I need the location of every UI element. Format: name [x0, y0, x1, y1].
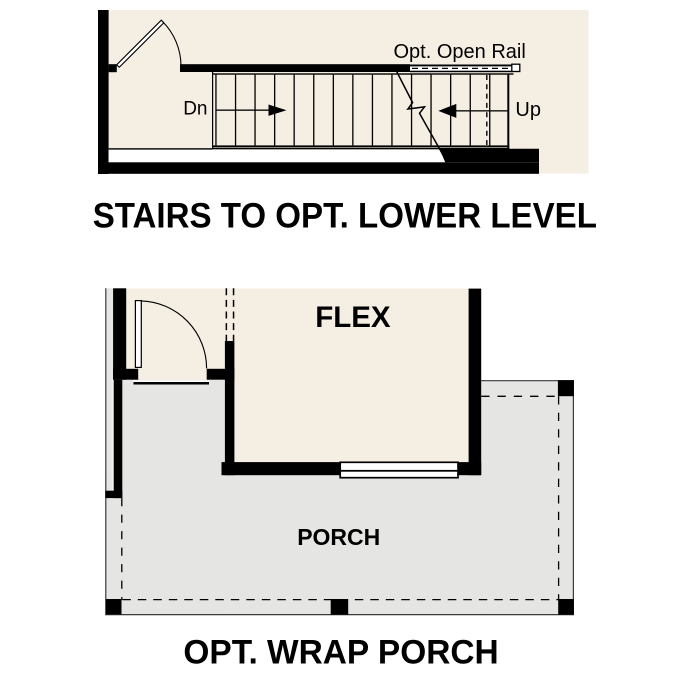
svg-text:FLEX: FLEX [315, 301, 391, 334]
svg-text:Up: Up [515, 99, 541, 121]
svg-text:Opt. Open Rail: Opt. Open Rail [394, 41, 526, 63]
svg-text:STAIRS TO OPT. LOWER LEVEL: STAIRS TO OPT. LOWER LEVEL [93, 197, 597, 236]
svg-text:OPT. WRAP PORCH: OPT. WRAP PORCH [183, 633, 498, 672]
svg-text:Dn: Dn [183, 99, 207, 120]
svg-text:PORCH: PORCH [297, 524, 380, 550]
